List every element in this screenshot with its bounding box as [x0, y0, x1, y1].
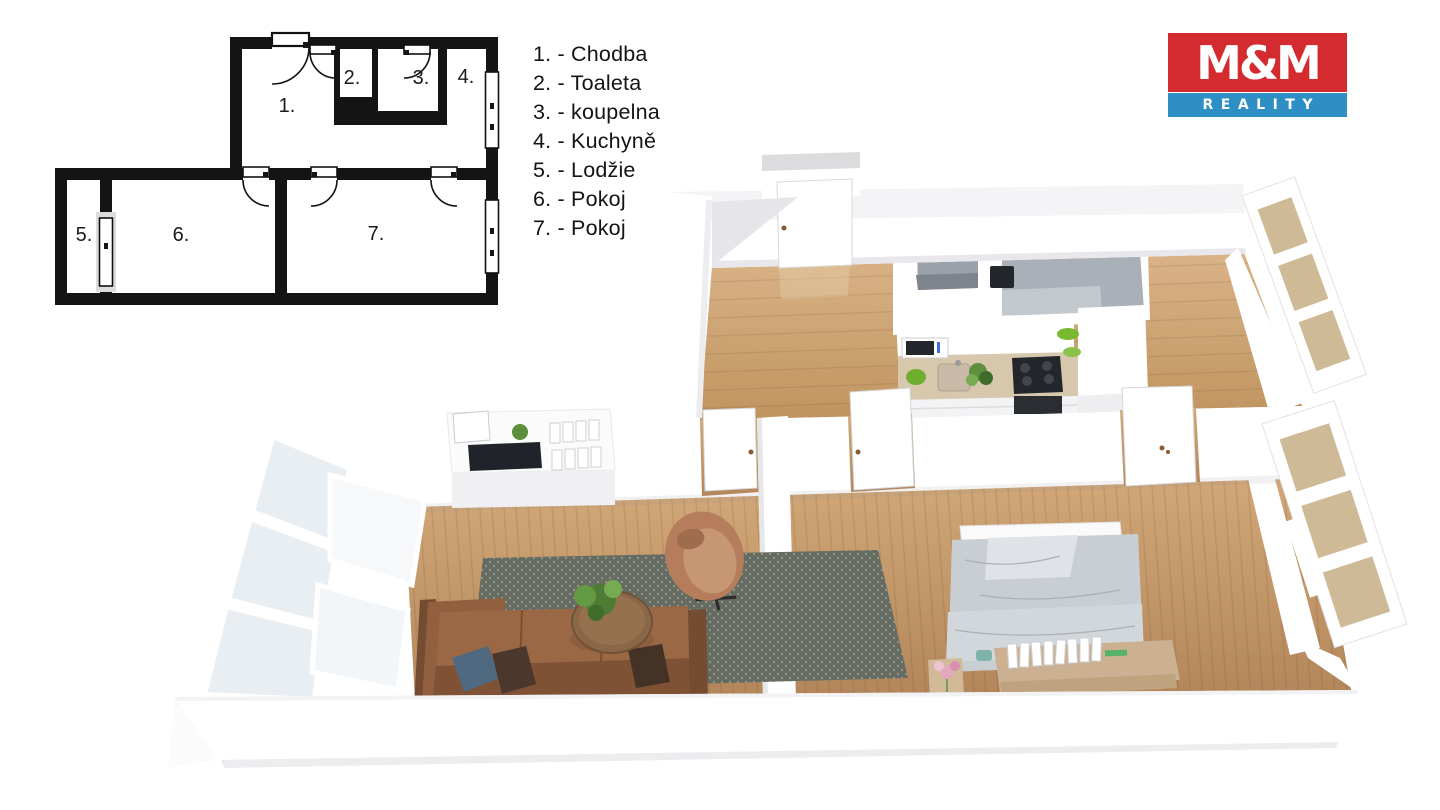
- room-number-label: 4.: [458, 66, 475, 88]
- tv: [468, 442, 542, 471]
- mm-reality-logo: M&M REALITY: [1168, 33, 1347, 117]
- washing-machine: [990, 266, 1014, 288]
- logo-title: M&M: [1168, 33, 1347, 92]
- green-bowl: [1063, 347, 1081, 357]
- door-handle: [856, 450, 861, 455]
- door-handle: [749, 450, 754, 455]
- door-living-room: [703, 408, 757, 491]
- green-bowl: [1057, 328, 1079, 340]
- door-arc: [310, 45, 336, 78]
- listing-image: 1. 2. 3. 4. 5. 6. 7. 1. - Chodba 2. - To…: [0, 0, 1440, 810]
- plant-small: [512, 424, 528, 440]
- kitchen-counter: [896, 305, 1148, 420]
- legend-item: 3. - koupelna: [533, 98, 660, 127]
- balcony: [198, 425, 425, 700]
- room-number-label: 1.: [279, 95, 296, 117]
- door-handle: [1166, 450, 1170, 454]
- logo-subtitle: REALITY: [1168, 93, 1347, 117]
- floor-plan-3d: [165, 140, 1420, 785]
- legend-item: 1. - Chodba: [533, 40, 660, 69]
- picture-frame: [453, 411, 490, 443]
- window-symbol: [96, 212, 116, 292]
- wall-south: [168, 690, 1358, 768]
- microwave: [902, 338, 948, 358]
- door-bedroom-right: [1122, 386, 1196, 486]
- legend-item: 2. - Toaleta: [533, 69, 660, 98]
- room-number-label: 2.: [344, 67, 361, 89]
- tv-sideboard: [447, 409, 615, 508]
- teal-cushion: [976, 650, 992, 661]
- sofa: [414, 598, 708, 706]
- kitchen-sink: [938, 360, 970, 391]
- door-arc: [272, 33, 309, 84]
- cooktop: [1012, 356, 1063, 394]
- book-shelf: [994, 637, 1180, 698]
- room-number-label: 5.: [76, 224, 93, 246]
- room-number-label: 3.: [413, 67, 430, 89]
- door-handle: [782, 226, 787, 231]
- book-dark: [1105, 650, 1127, 657]
- window-symbol: [486, 72, 499, 148]
- door-bedroom-left: [850, 388, 914, 490]
- door-handle: [1160, 446, 1165, 451]
- oven: [1014, 396, 1062, 414]
- green-bowl: [906, 369, 926, 385]
